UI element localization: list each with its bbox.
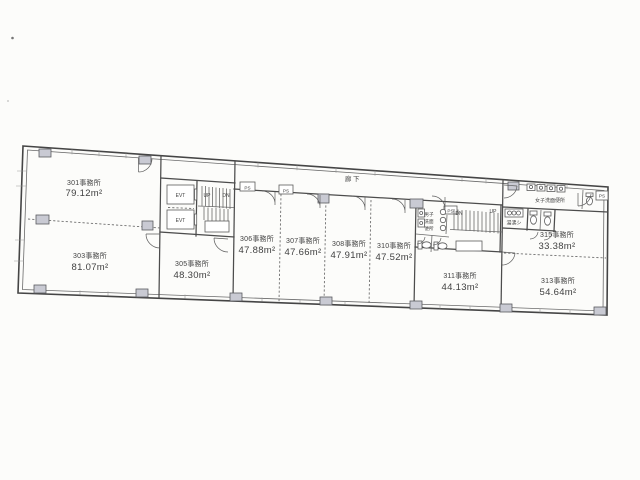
room-306-area: 47.88m²	[239, 245, 276, 256]
floor-plan-scan: 廊下 301事務所 79.12m² 303事務所 81.07m² 305事務所 …	[0, 0, 640, 480]
pipe-shaft-label-2: PS	[283, 189, 289, 194]
mens-urinals	[440, 209, 445, 230]
room-305-name: 305事務所	[175, 259, 209, 268]
room-305-area: 48.30m²	[174, 270, 211, 281]
room-301-name: 301事務所	[67, 178, 101, 187]
room-306-name: 306事務所	[240, 234, 274, 243]
room-315-name: 315事務所	[540, 230, 574, 239]
kitchenette-label: 湯沸シ	[506, 220, 521, 227]
pipe-shaft-label-4: PS	[599, 194, 605, 199]
left-core	[160, 178, 235, 237]
left-stairs-up-label: UP	[204, 193, 212, 199]
room-315-area: 33.38m²	[539, 241, 576, 252]
structural-columns	[34, 149, 606, 315]
mens-restroom-label-line2: 洗面	[424, 218, 434, 225]
right-stairs-down-label: DN	[455, 211, 463, 217]
elevator-2-label: EVT	[176, 218, 186, 224]
room-303-name: 303事務所	[73, 251, 107, 260]
right-block-fixtures	[505, 184, 608, 225]
floor-plan-drawing: 廊下 301事務所 79.12m² 303事務所 81.07m² 305事務所 …	[0, 0, 640, 480]
pipe-shaft-label-1: PS	[244, 186, 250, 191]
room-310-area: 47.52m²	[376, 252, 413, 263]
womens-restroom-label: 女子洗面便所	[535, 197, 565, 204]
mens-restroom-label-line3: 便所	[424, 225, 434, 232]
left-stairs-down-label: DN	[222, 193, 230, 199]
room-303-area: 81.07m²	[72, 262, 109, 273]
room-311-name: 311事務所	[443, 271, 476, 280]
room-301-area: 79.12m²	[66, 188, 103, 199]
mens-restroom-label-line1: 男子	[424, 211, 434, 218]
kitchenette-sink	[505, 209, 523, 217]
pipe-shaft-label-3: PS	[447, 209, 453, 214]
womens-washbasins	[527, 184, 565, 192]
exterior-walls	[18, 146, 608, 315]
elevator-1-label: EVT	[176, 193, 186, 199]
scan-specks	[7, 37, 14, 102]
room-307-area: 47.66m²	[285, 247, 322, 258]
room-313-area: 54.64m²	[540, 287, 577, 298]
room-308-name: 308事務所	[332, 239, 366, 248]
room-311-area: 44.13m²	[442, 282, 479, 293]
right-stairs-up-label: UP	[490, 209, 498, 215]
room-307-name: 307事務所	[286, 236, 320, 245]
room-308-area: 47.91m²	[331, 250, 368, 261]
room-310-name: 310事務所	[377, 241, 411, 250]
room-313-name: 313事務所	[541, 276, 575, 285]
corridor-label: 廊下	[345, 174, 361, 183]
